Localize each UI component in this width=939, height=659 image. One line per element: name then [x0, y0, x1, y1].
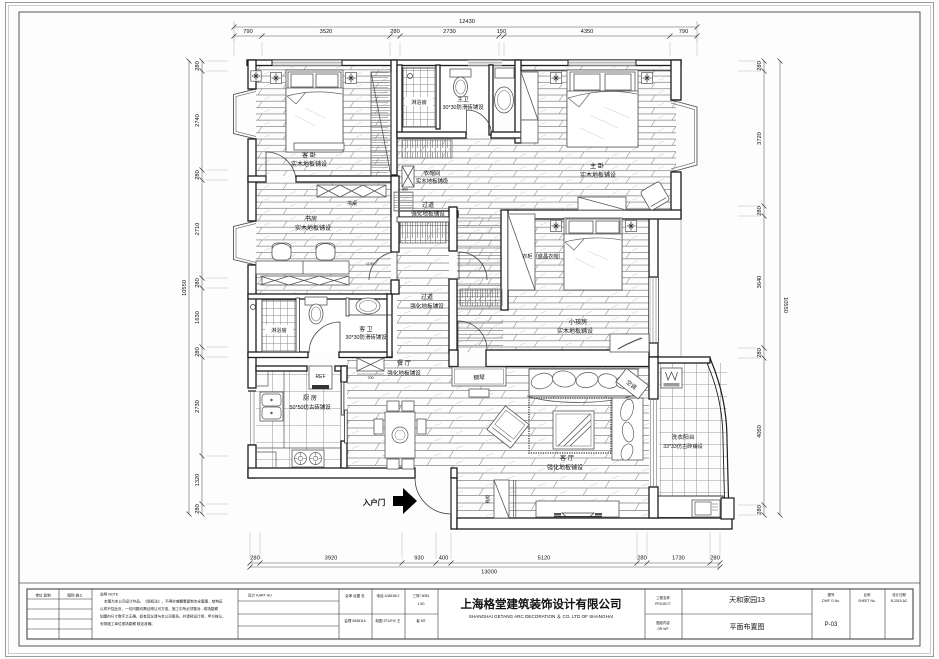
- svg-text:实木地板铺设: 实木地板铺设: [291, 160, 327, 168]
- svg-text:400: 400: [439, 556, 449, 562]
- svg-text:图别 施工: 图别 施工: [67, 593, 83, 598]
- svg-text:150: 150: [497, 29, 507, 35]
- svg-text:制图 STUFIX 王: 制图 STUFIX 王: [376, 618, 401, 623]
- svg-text:10550: 10550: [782, 297, 788, 313]
- svg-text:280: 280: [195, 278, 201, 288]
- svg-text:4050: 4050: [757, 425, 763, 438]
- svg-text:电话 A38158 2: 电话 A38158 2: [377, 593, 400, 598]
- svg-text:PROJECT: PROJECT: [655, 602, 671, 606]
- svg-text:强化地板铺设: 强化地板铺设: [411, 210, 445, 218]
- svg-text:本图为本公司设计作品，《版权法》、不得抄袭翻看复制本全套图，: 本图为本公司设计作品，《版权法》、不得抄袭翻看复制本全套图，结构区: [104, 599, 223, 604]
- svg-text:REF: REF: [316, 374, 326, 380]
- svg-text:5120: 5120: [538, 556, 551, 562]
- svg-text:监理 083811b: 监理 083811b: [344, 618, 365, 623]
- svg-text:淋浴房: 淋浴房: [271, 326, 287, 334]
- svg-text:客 卫: 客 卫: [359, 325, 372, 333]
- svg-text:10550: 10550: [182, 280, 188, 296]
- svg-text:工程名称: 工程名称: [656, 595, 670, 600]
- svg-text:过道: 过道: [421, 293, 433, 301]
- svg-text:者 MT: 者 MT: [416, 618, 426, 623]
- svg-text:DWF`G No.: DWF`G No.: [822, 599, 840, 603]
- svg-text:强化地板铺设: 强化地板铺设: [410, 302, 444, 310]
- svg-text:强化地板铺设: 强化地板铺设: [387, 369, 421, 377]
- svg-text:厨 房: 厨 房: [303, 394, 317, 402]
- svg-text:2740: 2740: [195, 114, 201, 127]
- svg-text:实木地板铺设: 实木地板铺设: [416, 177, 449, 185]
- svg-text:天和家园13: 天和家园13: [729, 595, 765, 604]
- svg-text:280: 280: [195, 61, 201, 71]
- svg-text:33*33仿古砖铺设: 33*33仿古砖铺设: [663, 442, 703, 450]
- svg-text:790: 790: [679, 29, 689, 35]
- svg-text:平面布置图: 平面布置图: [730, 622, 765, 631]
- svg-text:280: 280: [195, 347, 201, 357]
- svg-text:280: 280: [757, 348, 763, 358]
- svg-text:30*30防滑砖铺设: 30*30防滑砖铺设: [442, 103, 484, 111]
- svg-text:单位 监制: 单位 监制: [35, 593, 51, 598]
- svg-text:小孩房: 小孩房: [569, 318, 588, 326]
- svg-text:钢琴: 钢琴: [473, 374, 485, 382]
- svg-text:鞋柜: 鞋柜: [484, 495, 491, 503]
- svg-text:280: 280: [757, 61, 763, 71]
- svg-text:会审 绘图 杜: 会审 绘图 杜: [345, 593, 365, 598]
- svg-text:4350: 4350: [581, 29, 594, 35]
- svg-text:3720: 3720: [757, 132, 763, 145]
- svg-text:DR WF: DR WF: [657, 627, 668, 631]
- svg-text:12430: 12430: [459, 19, 475, 25]
- svg-text:客 卧: 客 卧: [302, 151, 316, 159]
- svg-text:280: 280: [757, 206, 763, 216]
- svg-text:280: 280: [757, 505, 763, 515]
- svg-text:2730: 2730: [195, 400, 201, 413]
- svg-text:700: 700: [367, 376, 373, 380]
- svg-text:书桌: 书桌: [347, 199, 357, 207]
- svg-text:280: 280: [195, 504, 201, 514]
- svg-text:2710: 2710: [195, 223, 201, 236]
- svg-text:930: 930: [414, 556, 424, 562]
- svg-text:图纸内容: 图纸内容: [656, 620, 670, 625]
- svg-text:790: 790: [243, 29, 253, 35]
- svg-text:P-03: P-03: [825, 622, 838, 628]
- svg-text:280: 280: [250, 556, 260, 562]
- svg-text:主卫: 主卫: [457, 95, 469, 103]
- svg-text:3640: 3640: [757, 276, 763, 289]
- svg-text:3920: 3920: [325, 556, 338, 562]
- svg-text:衣帽间: 衣帽间: [424, 169, 441, 177]
- svg-text:1:50: 1:50: [418, 602, 425, 606]
- svg-text:SHEET No.: SHEET No.: [858, 599, 876, 603]
- svg-text:3520: 3520: [320, 29, 333, 35]
- svg-text:三财/ 5081: 三财/ 5081: [413, 593, 430, 598]
- svg-text:30*30防滑砖铺设: 30*30防滑砖铺设: [345, 333, 387, 341]
- svg-text:强化地板铺设: 强化地板铺设: [547, 464, 583, 472]
- svg-text:B-2015-AC: B-2015-AC: [891, 599, 908, 603]
- svg-text:1320: 1320: [195, 474, 201, 487]
- svg-text:以样不性此页，一切问题均需征得认可方准。施工中所必须核对..: 以样不性此页，一切问题均需征得认可方准。施工中所必须核对...现场勘察: [100, 606, 218, 611]
- svg-text:书房: 书房: [305, 215, 317, 223]
- svg-text:实木地板铺设: 实木地板铺设: [295, 224, 331, 232]
- svg-text:洗衣阳台: 洗衣阳台: [671, 433, 694, 441]
- svg-text:实木地板铺设: 实木地板铺设: [580, 171, 616, 179]
- svg-text:客 厅: 客 厅: [560, 454, 574, 462]
- svg-text:主 卧: 主 卧: [590, 162, 604, 170]
- svg-text:280: 280: [390, 29, 400, 35]
- svg-text:过道: 过道: [422, 201, 434, 209]
- svg-text:如图内尺寸数字之正确，如有异议请与本公司联系。并请经设计师、: 如图内尺寸数字之正确，如有异议请与本公司联系。并请经设计师、甲方核认，: [100, 614, 226, 619]
- svg-text:入户门: 入户门: [362, 497, 386, 507]
- svg-text:比例: 比例: [864, 592, 871, 597]
- svg-text:2730: 2730: [443, 29, 456, 35]
- svg-text:淋浴房: 淋浴房: [411, 98, 427, 106]
- svg-text:说明 NOTE: 说明 NOTE: [100, 592, 119, 597]
- svg-text:实木地板铺设: 实木地板铺设: [557, 327, 593, 335]
- svg-text:上海格堂建筑装饰设计有限公司: 上海格堂建筑装饰设计有限公司: [461, 597, 622, 611]
- svg-text:餐 厅: 餐 厅: [397, 359, 411, 367]
- svg-text:安排施工单位现场勘察 核定准确。: 安排施工单位现场勘察 核定准确。: [100, 621, 155, 626]
- svg-text:280: 280: [195, 170, 201, 180]
- svg-text:图号: 图号: [828, 592, 835, 597]
- svg-text:280: 280: [710, 556, 720, 562]
- svg-text:1630: 1630: [195, 311, 201, 324]
- svg-text:设计日期: 设计日期: [892, 592, 906, 597]
- svg-text:1730: 1730: [672, 556, 685, 562]
- svg-text:850: 850: [402, 188, 408, 192]
- svg-text:280: 280: [637, 556, 647, 562]
- svg-text:设计 KART HU: 设计 KART HU: [248, 593, 272, 598]
- svg-text:衣柜（盛晶衣帽）: 衣柜（盛晶衣帽）: [522, 252, 564, 260]
- svg-text:50*50仿古砖铺设: 50*50仿古砖铺设: [289, 403, 331, 411]
- svg-text:13000: 13000: [481, 570, 497, 576]
